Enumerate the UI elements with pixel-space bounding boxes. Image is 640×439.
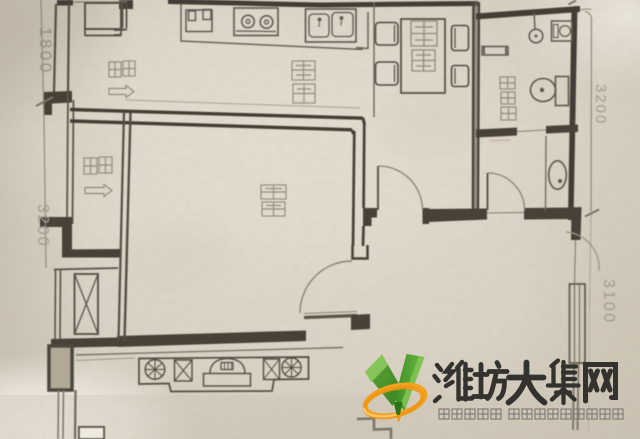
svg-text:3200: 3200 (592, 84, 609, 125)
svg-text:1800: 1800 (36, 27, 55, 75)
svg-text:3100: 3100 (600, 279, 617, 325)
svg-text:3200: 3200 (34, 204, 51, 248)
